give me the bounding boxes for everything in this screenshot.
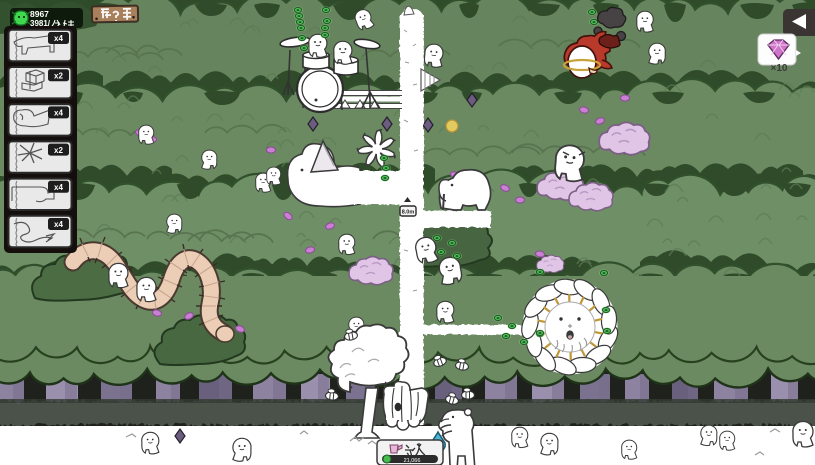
svg-text:x4: x4 xyxy=(54,183,63,192)
svg-text:21,066: 21,066 xyxy=(404,458,421,464)
svg-text:8967: 8967 xyxy=(30,9,49,19)
svg-text:8.0m: 8.0m xyxy=(402,210,415,216)
svg-text:×10: ×10 xyxy=(771,63,788,74)
svg-text:x4: x4 xyxy=(54,34,63,43)
svg-text:x2: x2 xyxy=(54,146,63,155)
svg-text:x4: x4 xyxy=(54,109,63,118)
svg-text:x4: x4 xyxy=(54,220,63,229)
svg-text:x2: x2 xyxy=(54,71,63,80)
